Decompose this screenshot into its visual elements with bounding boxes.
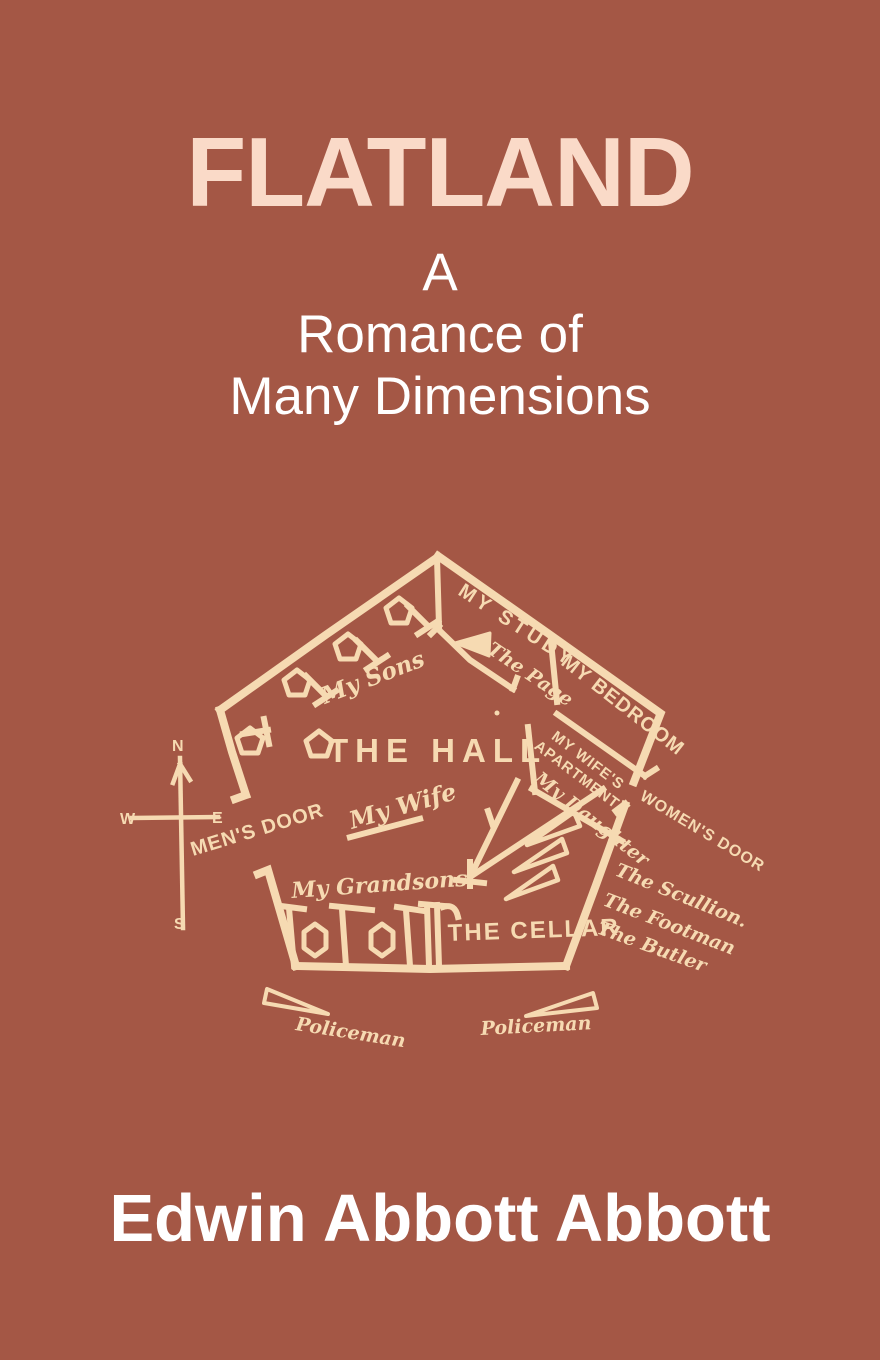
compass-w-label: W	[120, 811, 136, 828]
book-cover: FLATLAND A Romance of Many Dimensions	[0, 0, 880, 1360]
compass-e-label: E	[212, 810, 223, 827]
grandsons-divider-1	[332, 906, 372, 966]
hall-dot-mark	[495, 711, 500, 716]
cellar-hook-wall	[443, 906, 458, 917]
servants-stub-wall	[488, 811, 493, 826]
label-the-cellar: THE CELLAR	[447, 914, 620, 947]
son-pentagon-1	[386, 598, 412, 623]
author-name: Edwin Abbott Abbott	[0, 1180, 880, 1257]
grandsons-divider-2	[397, 907, 424, 966]
label-womens-door: WOMEN'S DOOR	[637, 788, 768, 876]
label-policeman-left: Policeman	[293, 1013, 407, 1052]
flatland-house-plan-illustration: N W E S MY STUDY The Page MY BEDROOM My …	[0, 0, 880, 1360]
cellar-left-wall	[421, 904, 444, 966]
compass-s-label: S	[174, 916, 185, 933]
grandson-hexagon-1	[304, 924, 326, 956]
label-the-hall: THE HALL	[328, 732, 547, 769]
label-mens-door: MEN'S DOOR	[188, 799, 327, 860]
label-my-grandsons: My Grandsons	[290, 866, 469, 904]
label-policeman-right: Policeman	[479, 1012, 592, 1040]
grandson-hexagon-2	[371, 924, 393, 956]
compass-vertical-line	[180, 758, 183, 928]
compass-n-label: N	[172, 738, 184, 755]
policeman-triangle-left	[264, 989, 328, 1014]
compass-horizontal-line	[132, 817, 218, 818]
